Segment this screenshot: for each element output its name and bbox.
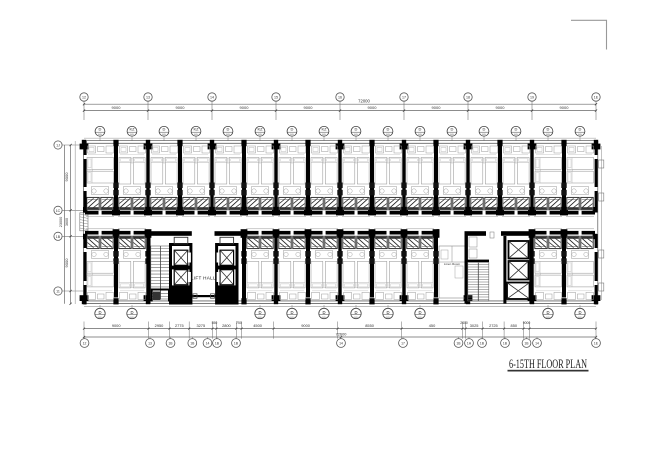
svg-text:1B: 1B <box>168 342 173 346</box>
svg-text:D: D <box>98 310 101 315</box>
svg-text:D: D <box>451 127 454 132</box>
svg-text:18: 18 <box>466 96 470 100</box>
svg-text:D: D <box>355 127 358 132</box>
svg-text:D: D <box>290 310 293 315</box>
svg-text:9000: 9000 <box>64 172 69 182</box>
svg-text:3275: 3275 <box>196 323 205 328</box>
svg-text:D: D <box>419 127 422 132</box>
svg-text:1B: 1B <box>503 342 508 346</box>
svg-text:9000: 9000 <box>304 105 314 110</box>
svg-text:72000: 72000 <box>358 99 370 104</box>
svg-text:850: 850 <box>511 323 518 328</box>
svg-text:D: D <box>258 310 261 315</box>
svg-text:D: D <box>483 127 486 132</box>
svg-text:2800: 2800 <box>222 323 231 328</box>
svg-text:1B: 1B <box>524 342 529 346</box>
svg-text:13: 13 <box>146 96 150 100</box>
svg-text:9000: 9000 <box>368 105 378 110</box>
svg-text:17: 17 <box>401 342 405 346</box>
svg-text:D: D <box>322 310 325 315</box>
svg-text:15: 15 <box>274 96 278 100</box>
svg-text:12: 12 <box>82 96 86 100</box>
svg-text:16: 16 <box>338 96 342 100</box>
svg-text:KZ: KZ <box>129 127 135 132</box>
svg-text:14: 14 <box>339 342 343 346</box>
svg-text:750: 750 <box>236 321 242 325</box>
svg-text:1B: 1B <box>480 342 485 346</box>
svg-text:D: D <box>579 127 582 132</box>
svg-text:3025: 3025 <box>470 323 479 328</box>
svg-text:9000: 9000 <box>560 105 570 110</box>
svg-text:D: D <box>227 127 230 132</box>
svg-text:9000: 9000 <box>112 323 121 328</box>
svg-text:1E: 1E <box>594 96 599 100</box>
svg-text:23000: 23000 <box>59 217 63 228</box>
svg-text:D: D <box>418 310 421 315</box>
svg-text:1B: 1B <box>234 342 239 346</box>
svg-text:2400: 2400 <box>460 321 468 325</box>
svg-text:11: 11 <box>56 290 60 294</box>
svg-text:9000: 9000 <box>64 258 69 268</box>
svg-text:19: 19 <box>530 96 534 100</box>
svg-text:1B: 1B <box>456 342 461 346</box>
svg-text:4500: 4500 <box>253 323 262 328</box>
svg-text:KZ: KZ <box>321 127 327 132</box>
svg-text:2775: 2775 <box>175 323 184 328</box>
svg-text:1E: 1E <box>594 342 599 346</box>
svg-text:9000: 9000 <box>523 321 531 325</box>
svg-text:D: D <box>515 127 518 132</box>
svg-text:2725: 2725 <box>489 323 498 328</box>
svg-text:1B: 1B <box>56 235 61 239</box>
svg-text:D: D <box>163 127 166 132</box>
svg-text:1J: 1J <box>56 144 60 148</box>
svg-text:1C: 1C <box>56 209 61 213</box>
svg-text:1H: 1H <box>467 342 472 346</box>
svg-text:D: D <box>386 310 389 315</box>
svg-text:LIFT HALL: LIFT HALL <box>191 275 216 280</box>
svg-text:550: 550 <box>212 321 218 325</box>
svg-text:D: D <box>291 127 294 132</box>
svg-text:D: D <box>387 127 390 132</box>
svg-text:72600: 72600 <box>336 331 348 336</box>
svg-text:2950: 2950 <box>155 323 164 328</box>
svg-text:KZ: KZ <box>193 127 199 132</box>
svg-text:1B: 1B <box>215 342 220 346</box>
svg-text:KZ: KZ <box>257 127 263 132</box>
svg-text:14: 14 <box>210 96 214 100</box>
svg-text:D: D <box>547 127 550 132</box>
svg-text:D: D <box>546 310 549 315</box>
svg-text:9000: 9000 <box>432 105 442 110</box>
svg-text:1B: 1B <box>190 342 195 346</box>
svg-text:14: 14 <box>535 342 539 346</box>
svg-text:9000: 9000 <box>496 105 506 110</box>
svg-text:9000: 9000 <box>240 105 250 110</box>
svg-text:6-15TH FLOOR PLAN: 6-15TH FLOOR PLAN <box>509 357 587 371</box>
svg-text:450: 450 <box>429 323 436 328</box>
svg-text:14: 14 <box>206 342 210 346</box>
svg-text:13: 13 <box>148 342 152 346</box>
svg-text:17: 17 <box>402 96 406 100</box>
svg-text:Linen Room: Linen Room <box>444 262 461 266</box>
svg-text:12: 12 <box>83 342 87 346</box>
svg-text:D: D <box>354 310 357 315</box>
svg-text:9000: 9000 <box>112 105 122 110</box>
svg-text:D: D <box>99 127 102 132</box>
svg-text:D: D <box>130 310 133 315</box>
svg-text:D: D <box>578 310 581 315</box>
svg-text:9000: 9000 <box>301 323 310 328</box>
svg-text:3600: 3600 <box>65 218 69 226</box>
svg-text:9000: 9000 <box>176 105 186 110</box>
svg-text:8550: 8550 <box>365 323 374 328</box>
